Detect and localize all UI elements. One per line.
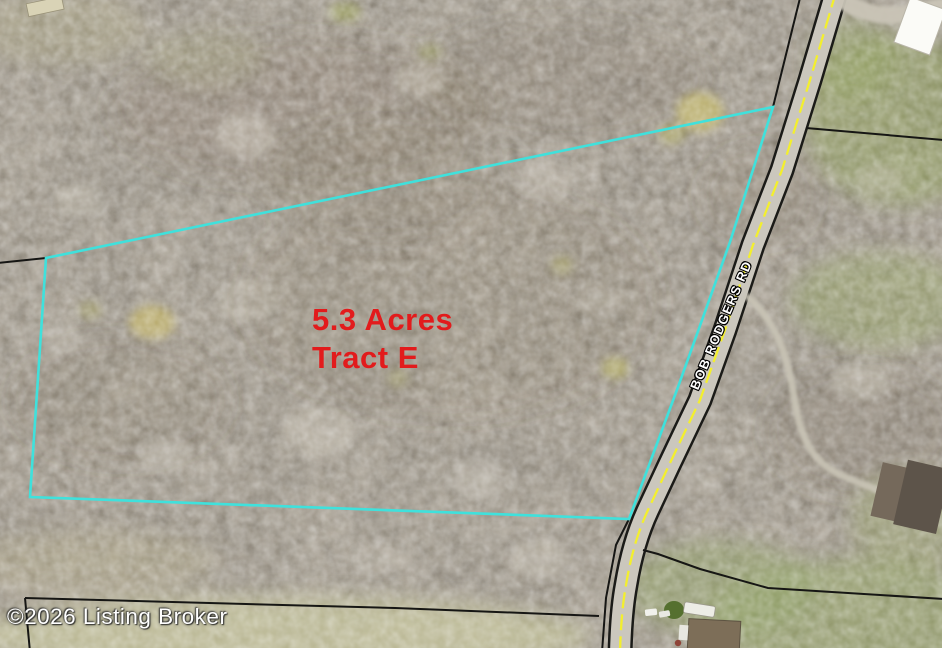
aerial-map: 5.3 Acres Tract E BOB RODGERS RD ©2026 L… xyxy=(0,0,942,648)
car-white-1 xyxy=(645,608,658,616)
house-bottom-center xyxy=(687,619,741,648)
acreage-text: 5.3 Acres xyxy=(312,301,453,339)
object-red-dot xyxy=(675,640,681,646)
map-canvas xyxy=(0,0,942,648)
shed-bottom-center xyxy=(678,625,688,641)
acreage-label: 5.3 Acres Tract E xyxy=(312,301,453,377)
tract-text: Tract E xyxy=(312,339,453,377)
copyright-label: ©2026 Listing Broker xyxy=(7,604,227,630)
